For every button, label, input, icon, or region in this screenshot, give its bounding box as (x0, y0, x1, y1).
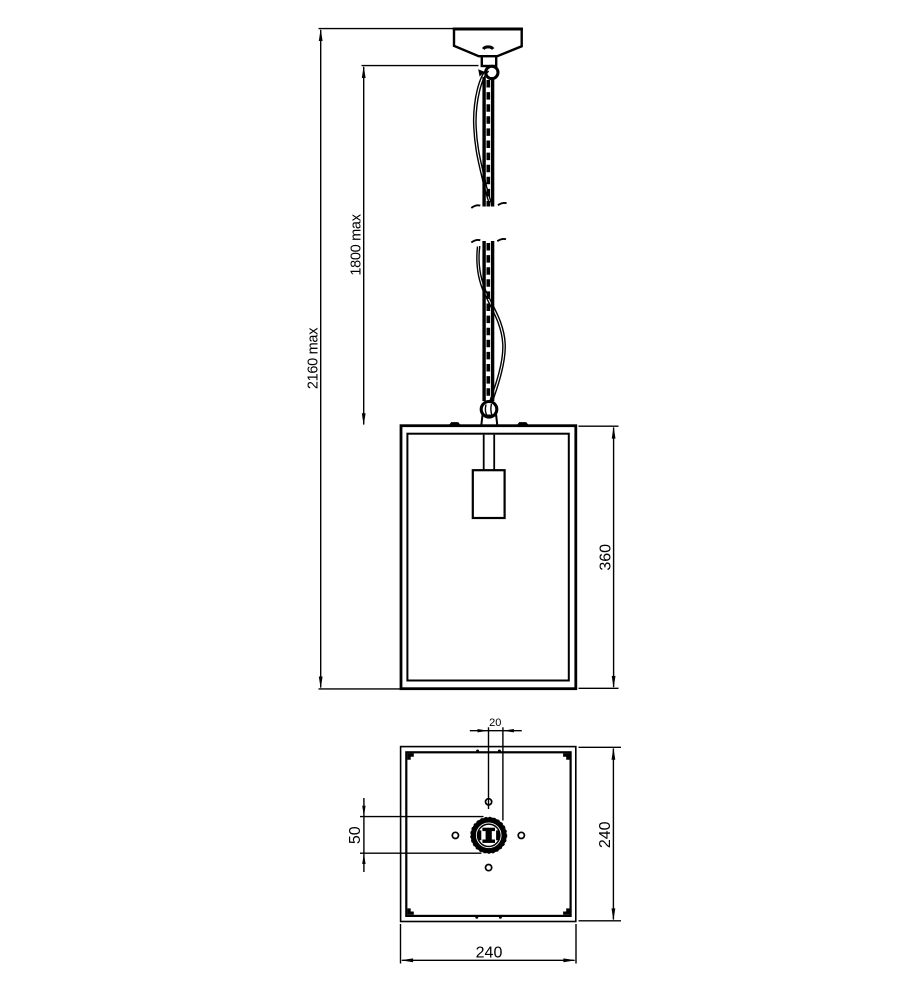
svg-text:1800 max: 1800 max (349, 213, 365, 275)
svg-text:20: 20 (489, 717, 501, 729)
svg-text:2160 max: 2160 max (306, 327, 322, 389)
svg-text:50: 50 (347, 826, 364, 844)
svg-text:240: 240 (476, 945, 503, 962)
svg-text:240: 240 (597, 821, 614, 848)
svg-text:360: 360 (598, 544, 615, 571)
